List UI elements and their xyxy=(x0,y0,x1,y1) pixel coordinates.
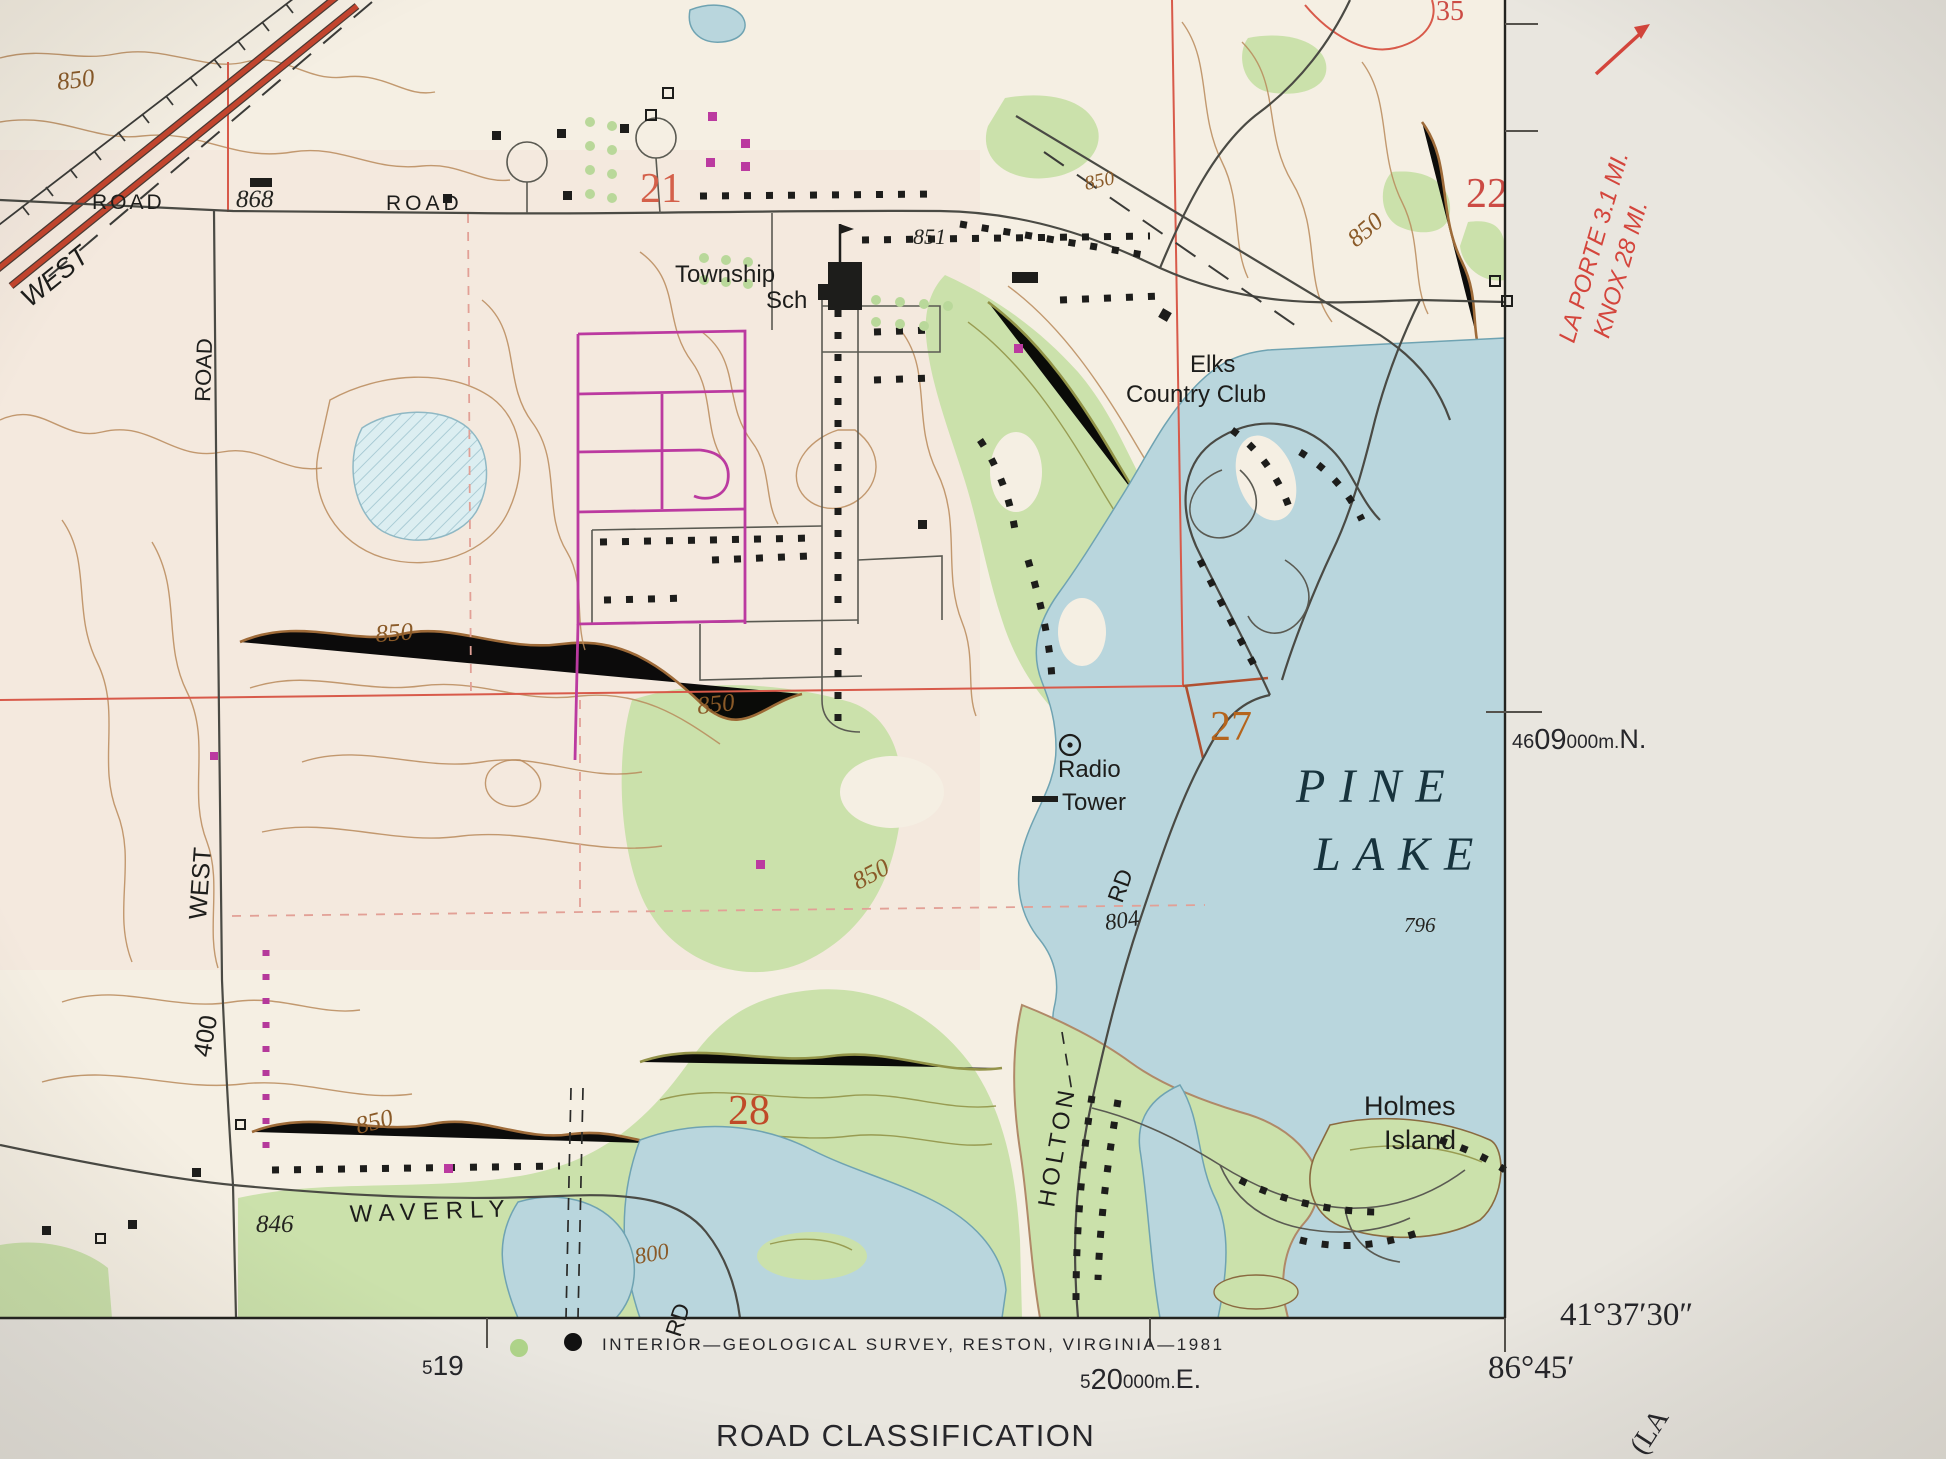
map-canvas: WEST 850 868 ROAD ROAD 21 Township Sch 8… xyxy=(0,0,1946,1459)
photo-vignette xyxy=(0,0,1946,1459)
topo-map-photo: WEST 850 868 ROAD ROAD 21 Township Sch 8… xyxy=(0,0,1946,1459)
